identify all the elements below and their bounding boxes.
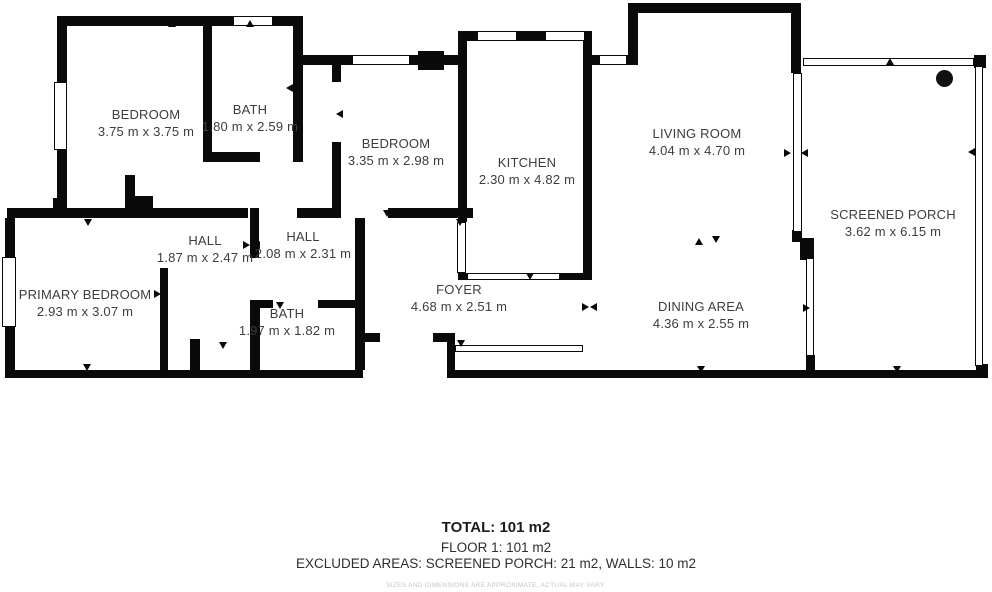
room-label-kitchen: KITCHEN 2.30 m x 4.82 m — [479, 155, 575, 189]
door-swing-arrow-icon — [286, 84, 293, 92]
floor-area-text: FLOOR 1: 101 m2 — [0, 540, 992, 555]
wall-segment — [447, 342, 455, 370]
room-name: HALL — [255, 229, 351, 246]
room-name: BATH — [239, 306, 335, 323]
door-swing-arrow-icon — [457, 340, 465, 347]
door-swing-arrow-icon — [154, 290, 161, 298]
room-dims: 4.68 m x 2.51 m — [411, 299, 507, 316]
wall-segment — [135, 196, 153, 208]
screen-wall-symbol — [975, 66, 983, 366]
door-swing-arrow-icon — [582, 303, 589, 311]
door-swing-arrow-icon — [801, 149, 808, 157]
wall-segment — [418, 51, 444, 70]
door-swing-arrow-icon — [714, 6, 722, 13]
disclaimer-text: SIZES AND DIMENSIONS ARE APPROXIMATE, AC… — [0, 582, 992, 589]
room-name: HALL — [157, 233, 253, 250]
room-dims: 3.62 m x 6.15 m — [830, 224, 956, 241]
wall-segment — [5, 327, 15, 370]
door-swing-arrow-icon — [697, 366, 705, 373]
room-label-bedroom-2: BEDROOM 3.35 m x 2.98 m — [348, 136, 444, 170]
wall-segment — [355, 218, 365, 370]
door-swing-arrow-icon — [83, 364, 91, 371]
window-symbol — [599, 55, 627, 65]
window-symbol — [467, 273, 560, 280]
door-swing-arrow-icon — [84, 219, 92, 226]
door-swing-arrow-icon — [893, 366, 901, 373]
wall-segment — [53, 198, 65, 208]
room-label-living-room: LIVING ROOM 4.04 m x 4.70 m — [649, 126, 745, 160]
room-name: LIVING ROOM — [649, 126, 745, 143]
wall-segment — [57, 16, 67, 82]
room-name: KITCHEN — [479, 155, 575, 172]
wall-segment — [190, 339, 200, 370]
room-name: SCREENED PORCH — [830, 207, 956, 224]
door-swing-arrow-icon — [456, 219, 464, 226]
window-symbol — [54, 82, 67, 150]
total-area-text: TOTAL: 101 m2 — [0, 519, 992, 536]
door-swing-arrow-icon — [784, 149, 791, 157]
wall-segment — [458, 273, 467, 280]
wall-segment — [976, 364, 988, 378]
room-dims: 2.30 m x 4.82 m — [479, 172, 575, 189]
room-label-screened-porch: SCREENED PORCH 3.62 m x 6.15 m — [830, 207, 956, 241]
wall-segment — [293, 16, 303, 162]
door-swing-arrow-icon — [886, 58, 894, 65]
door-swing-arrow-icon — [590, 303, 597, 311]
window-symbol — [455, 345, 583, 352]
door-swing-arrow-icon — [219, 342, 227, 349]
room-dims: 1.87 m x 2.47 m — [157, 250, 253, 267]
wall-segment — [592, 55, 599, 65]
room-name: BATH — [202, 102, 298, 119]
wall-segment — [7, 208, 248, 218]
room-label-bath-2: BATH 1.97 m x 1.82 m — [239, 306, 335, 340]
door-swing-arrow-icon — [695, 238, 703, 245]
wall-segment — [5, 218, 15, 257]
window-symbol — [457, 222, 466, 273]
room-name: BEDROOM — [348, 136, 444, 153]
floor-plan: BEDROOM 3.75 m x 3.75 m BATH 1.80 m x 2.… — [0, 0, 992, 592]
room-dims: 2.08 m x 2.31 m — [255, 246, 351, 263]
room-name: FOYER — [411, 282, 507, 299]
door-swing-arrow-icon — [712, 236, 720, 243]
wall-segment — [332, 142, 341, 218]
window-symbol — [2, 257, 16, 327]
door-swing-arrow-icon — [205, 84, 212, 92]
excluded-areas-text: EXCLUDED AREAS: SCREENED PORCH: 21 m2, W… — [0, 556, 992, 571]
room-dims: 1.80 m x 2.59 m — [202, 119, 298, 136]
window-symbol — [352, 55, 410, 65]
wall-segment — [433, 333, 455, 342]
room-dims: 3.75 m x 3.75 m — [98, 124, 194, 141]
room-dims: 4.36 m x 2.55 m — [653, 316, 749, 333]
window-symbol — [545, 31, 585, 41]
wall-segment — [297, 208, 332, 218]
room-label-primary-bedroom: PRIMARY BEDROOM 2.93 m x 3.07 m — [19, 287, 152, 321]
wall-segment — [806, 355, 815, 371]
wall-segment — [628, 3, 638, 55]
wall-segment — [57, 16, 233, 26]
door-swing-arrow-icon — [968, 148, 975, 156]
room-label-bath-1: BATH 1.80 m x 2.59 m — [202, 102, 298, 136]
wall-segment — [583, 40, 592, 280]
room-name: PRIMARY BEDROOM — [19, 287, 152, 304]
wall-segment — [5, 370, 363, 378]
room-dims: 1.97 m x 1.82 m — [239, 323, 335, 340]
wall-segment — [800, 238, 814, 260]
wall-segment — [160, 268, 168, 370]
door-swing-arrow-icon — [168, 20, 176, 27]
door-swing-arrow-icon — [336, 110, 343, 118]
room-label-bedroom-1: BEDROOM 3.75 m x 3.75 m — [98, 107, 194, 141]
door-swing-arrow-icon — [526, 273, 534, 280]
room-dims: 4.04 m x 4.70 m — [649, 143, 745, 160]
room-name: BEDROOM — [98, 107, 194, 124]
room-label-foyer: FOYER 4.68 m x 2.51 m — [411, 282, 507, 316]
scan-point-icon — [936, 70, 953, 87]
door-swing-arrow-icon — [246, 155, 254, 162]
wall-segment — [332, 64, 341, 82]
wall-segment — [791, 3, 801, 73]
room-name: DINING AREA — [653, 299, 749, 316]
room-label-hall-1: HALL 1.87 m x 2.47 m — [157, 233, 253, 267]
wall-segment — [458, 31, 467, 222]
wall-segment — [125, 175, 135, 208]
wall-segment — [627, 55, 638, 65]
room-dims: 3.35 m x 2.98 m — [348, 153, 444, 170]
window-symbol — [477, 31, 517, 41]
room-dims: 2.93 m x 3.07 m — [19, 304, 152, 321]
room-label-dining-area: DINING AREA 4.36 m x 2.55 m — [653, 299, 749, 333]
wall-segment — [517, 31, 545, 41]
room-label-hall-2: HALL 2.08 m x 2.31 m — [255, 229, 351, 263]
door-swing-arrow-icon — [383, 210, 391, 217]
door-swing-arrow-icon — [246, 20, 254, 27]
door-swing-arrow-icon — [803, 304, 810, 312]
wall-segment — [447, 370, 985, 378]
